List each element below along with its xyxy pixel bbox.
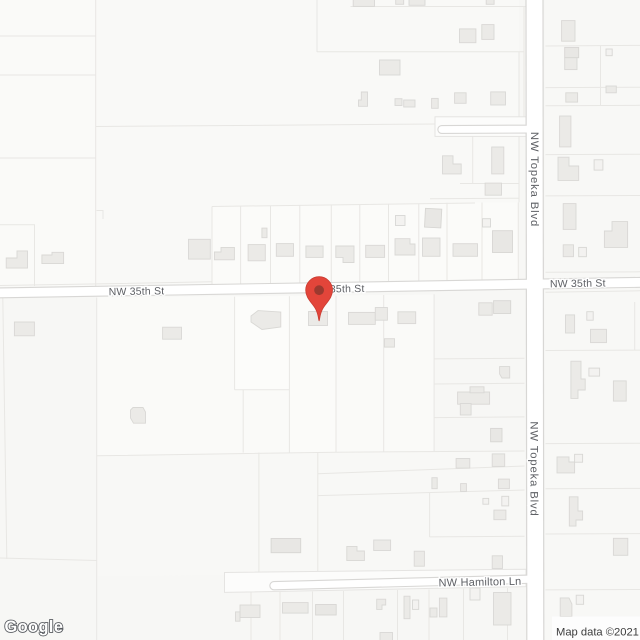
svg-text:Google: Google [5, 618, 64, 636]
svg-text:NW Hamilton Ln: NW Hamilton Ln [438, 576, 521, 590]
svg-text:NW 35th St: NW 35th St [550, 277, 606, 290]
svg-text:NW 35th St: NW 35th St [109, 285, 165, 298]
svg-text:NW Topeka Blvd: NW Topeka Blvd [528, 421, 540, 516]
svg-text:Map data ©2021: Map data ©2021 [556, 627, 639, 639]
svg-text:NW Topeka Blvd: NW Topeka Blvd [528, 132, 540, 227]
